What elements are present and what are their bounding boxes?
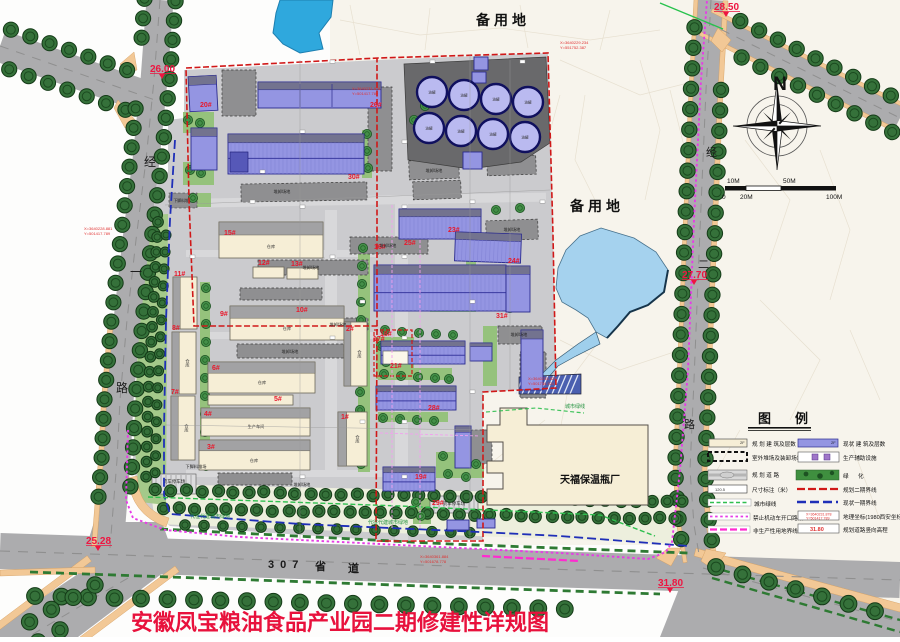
svg-text:生产辅助设施: 生产辅助设施	[843, 454, 877, 462]
svg-text:城市绿线: 城市绿线	[754, 500, 777, 508]
svg-text:20M: 20M	[740, 194, 753, 201]
svg-text:10M: 10M	[727, 178, 740, 185]
svg-text:100M: 100M	[826, 194, 842, 201]
svg-text:天福保温瓶厂: 天福保温瓶厂	[560, 473, 620, 486]
svg-text:堆卸场地: 堆卸场地	[303, 264, 321, 271]
svg-text:18#: 18#	[380, 331, 392, 338]
svg-text:3#: 3#	[207, 444, 215, 451]
svg-text:.: .	[588, 0, 589, 1]
svg-text:油罐: 油罐	[492, 97, 500, 102]
svg-text:Y=501417.789: Y=501417.789	[84, 231, 111, 236]
svg-text:24#: 24#	[508, 258, 520, 265]
svg-text:油罐: 油罐	[425, 126, 433, 131]
svg-text:代征代建城市绿地: 代征代建城市绿地	[368, 519, 408, 526]
svg-text:6#: 6#	[212, 365, 220, 372]
svg-text:路: 路	[116, 380, 128, 395]
svg-text:5#: 5#	[274, 396, 282, 403]
svg-text:50M: 50M	[783, 178, 796, 185]
svg-text:仓库: 仓库	[185, 357, 191, 368]
svg-text:10#: 10#	[296, 307, 308, 314]
svg-text:油罐: 油罐	[489, 132, 497, 137]
svg-text:堆卸场地: 堆卸场地	[511, 331, 529, 338]
svg-text:Y=551752.387: Y=551752.387	[560, 45, 587, 50]
svg-text:13#: 13#	[291, 261, 303, 268]
svg-text:堆卸场地: 堆卸场地	[330, 321, 348, 328]
svg-text:非生产性用地界线: 非生产性用地界线	[753, 527, 798, 535]
svg-text:4#: 4#	[204, 411, 212, 418]
svg-text:室外堆场及装卸场地: 室外堆场及装卸场地	[752, 454, 803, 462]
svg-text:仓库: 仓库	[357, 348, 363, 359]
svg-text:油罐: 油罐	[457, 129, 465, 134]
svg-text:城市绿线: 城市绿线	[565, 403, 585, 410]
svg-text:307: 307	[268, 559, 304, 571]
svg-text:Y=501678.778: Y=501678.778	[420, 559, 447, 564]
svg-text:Y=501417.789: Y=501417.789	[352, 91, 379, 96]
svg-text:规划道路竖向高程: 规划道路竖向高程	[843, 526, 888, 534]
svg-text:绿: 绿	[843, 472, 849, 480]
svg-text:油罐: 油罐	[428, 90, 436, 95]
svg-text:备用地: 备用地	[569, 198, 624, 214]
svg-text:1#: 1#	[341, 414, 349, 421]
svg-text:仓库: 仓库	[258, 379, 266, 386]
svg-text:规划二期界线: 规划二期界线	[843, 486, 877, 494]
svg-text:25#: 25#	[404, 240, 416, 247]
svg-text:30#: 30#	[348, 174, 360, 181]
svg-text:堆卸场地: 堆卸场地	[274, 188, 292, 195]
svg-text:经: 经	[706, 146, 717, 159]
svg-text:Y=501736.524: Y=501736.524	[528, 381, 555, 386]
svg-text:安徽凤宝粮油食品产业园二期修建性详规图: 安徽凤宝粮油食品产业园二期修建性详规图	[131, 610, 549, 635]
svg-text:堆卸场地: 堆卸场地	[294, 481, 312, 488]
svg-text:现状 建 筑及层数: 现状 建 筑及层数	[843, 440, 886, 448]
svg-text:31#: 31#	[496, 313, 508, 320]
svg-text:N: N	[773, 74, 787, 95]
svg-text:2F: 2F	[831, 440, 836, 445]
svg-text:规 划 建 筑及层数: 规 划 建 筑及层数	[752, 440, 796, 448]
svg-text:货车停车场: 货车停车场	[163, 478, 186, 485]
svg-text:例: 例	[795, 411, 808, 426]
svg-text:现状一期界线: 现状一期界线	[843, 499, 877, 507]
svg-text:代征代建城市绿地: 代征代建城市绿地	[190, 513, 230, 520]
svg-text:堆卸场地: 堆卸场地	[426, 167, 444, 174]
svg-text:化: 化	[858, 472, 864, 480]
svg-text:规 划 道 路: 规 划 道 路	[752, 471, 779, 479]
svg-text:一: 一	[130, 265, 142, 279]
svg-text:2#: 2#	[346, 326, 354, 333]
svg-text:15#: 15#	[224, 230, 236, 237]
svg-text:29#: 29#	[432, 500, 444, 507]
svg-text:仓库: 仓库	[250, 457, 258, 464]
svg-text:9#: 9#	[220, 311, 228, 318]
svg-text:禁止机动车开口路段: 禁止机动车开口路段	[753, 514, 804, 522]
svg-text:26#: 26#	[370, 102, 382, 109]
svg-text:23#: 23#	[448, 227, 460, 234]
svg-text:21#: 21#	[390, 363, 402, 370]
svg-text:道: 道	[348, 561, 359, 575]
svg-text:8#: 8#	[172, 325, 180, 332]
svg-text:仓库: 仓库	[184, 422, 190, 433]
svg-text:图: 图	[758, 411, 771, 426]
svg-text:仓库: 仓库	[355, 433, 361, 444]
svg-text:备用地: 备用地	[475, 12, 530, 28]
svg-text:路: 路	[684, 418, 695, 431]
svg-text:仓库: 仓库	[267, 243, 275, 250]
svg-text:尺寸标注（米）: 尺寸标注（米）	[752, 486, 791, 494]
svg-text:油罐: 油罐	[521, 135, 529, 140]
svg-text:11#: 11#	[174, 271, 185, 278]
svg-text:油罐: 油罐	[460, 93, 468, 98]
svg-text:油罐: 油罐	[524, 100, 532, 105]
svg-text:31.80: 31.80	[810, 527, 824, 533]
svg-text:120.5: 120.5	[715, 487, 726, 492]
svg-text:堆卸场地: 堆卸场地	[380, 242, 398, 249]
svg-text:7#: 7#	[171, 389, 179, 396]
svg-text:2F: 2F	[740, 440, 745, 445]
svg-text:0: 0	[722, 194, 726, 201]
svg-text:28#: 28#	[428, 405, 440, 412]
svg-text:地理坐标(1980西安坐标): 地理坐标(1980西安坐标)	[843, 513, 900, 521]
svg-text:20#: 20#	[200, 102, 212, 109]
svg-text:省: 省	[314, 559, 326, 573]
svg-text:经: 经	[144, 155, 156, 169]
svg-text:19#: 19#	[415, 474, 427, 481]
svg-text:下脚料堆场: 下脚料堆场	[186, 463, 207, 470]
svg-text:12#: 12#	[258, 260, 270, 267]
svg-text:堆卸场地: 堆卸场地	[282, 348, 300, 355]
svg-text:堆卸场地: 堆卸场地	[504, 226, 522, 233]
svg-text:Y=501417.789: Y=501417.789	[806, 517, 829, 521]
